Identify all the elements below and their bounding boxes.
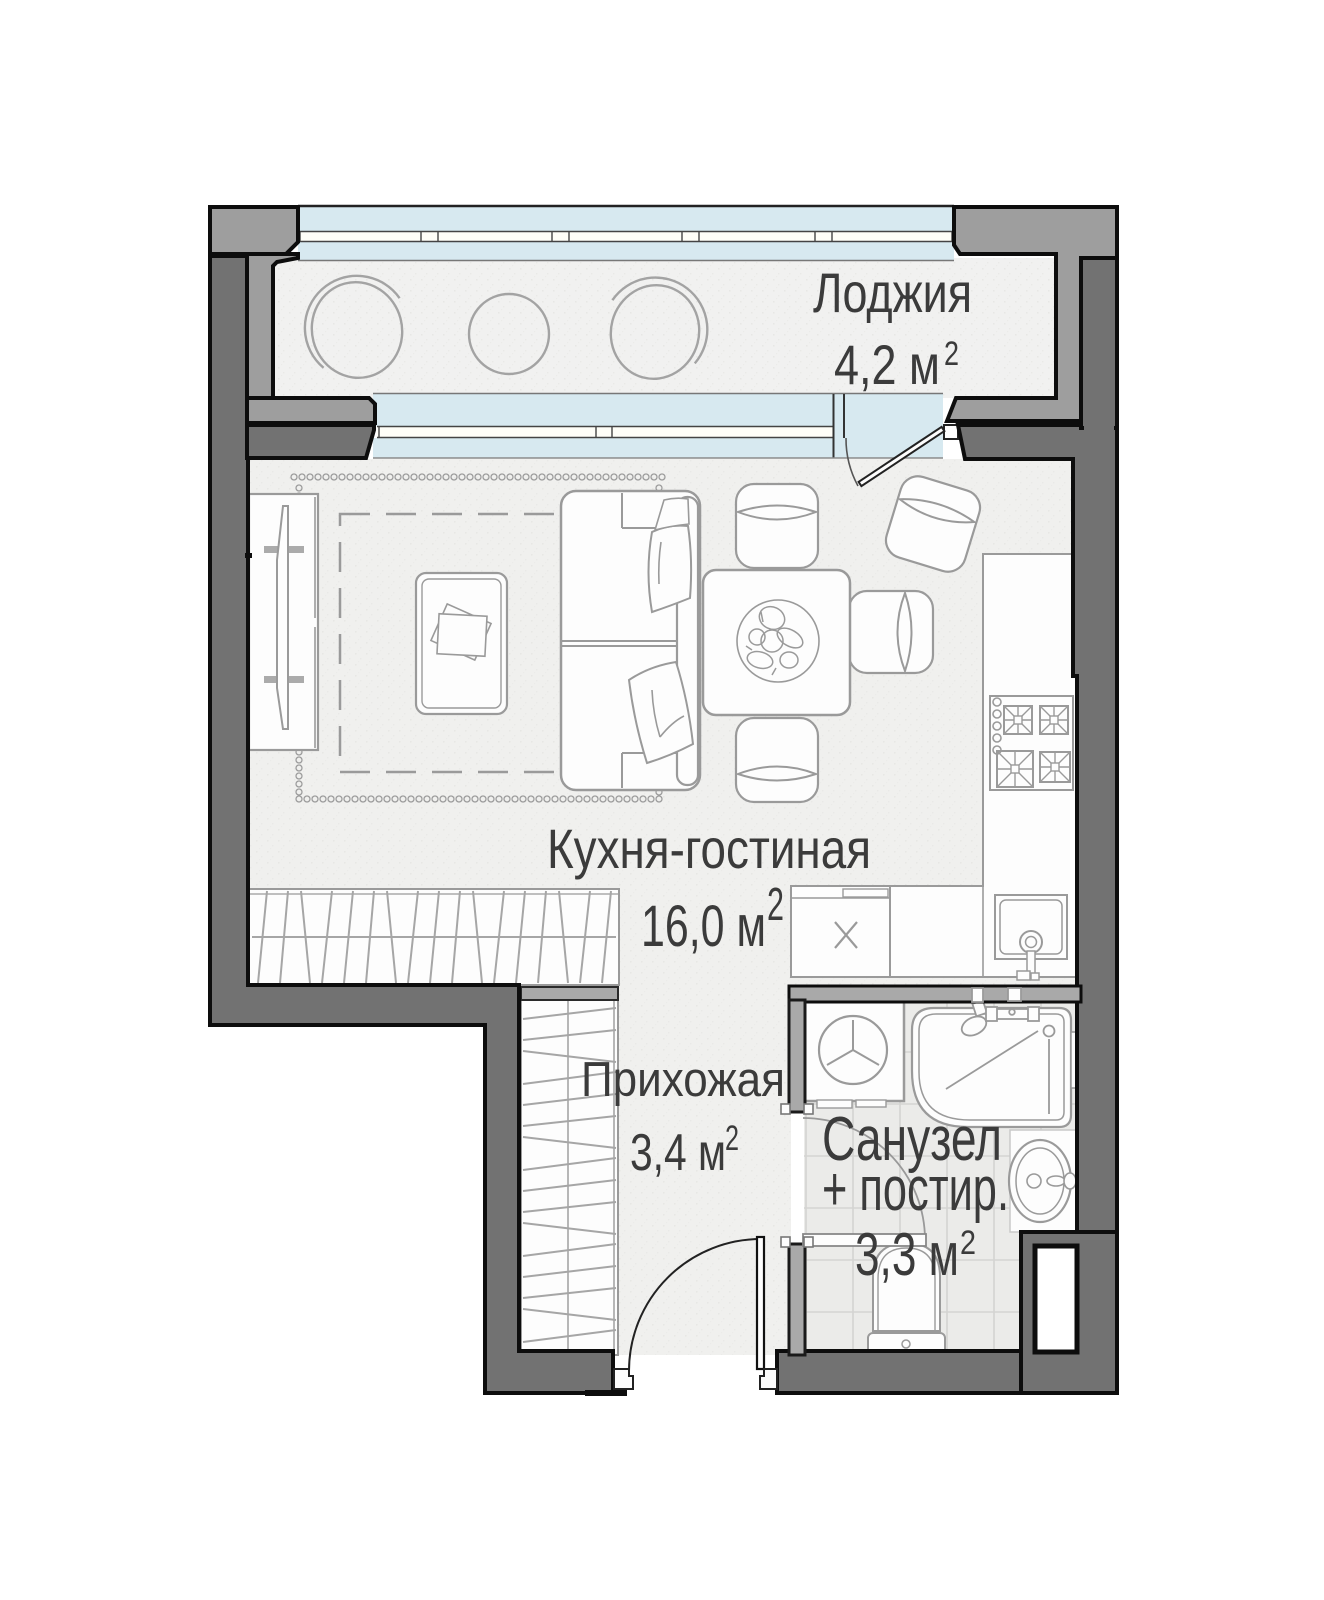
svg-text:2: 2 xyxy=(767,878,784,930)
svg-text:Лоджия: Лоджия xyxy=(813,261,972,324)
svg-text:2: 2 xyxy=(725,1119,739,1158)
svg-text:3,4 м: 3,4 м xyxy=(630,1124,726,1182)
svg-text:4,2 м: 4,2 м xyxy=(834,333,940,396)
svg-text:+ постир.: + постир. xyxy=(822,1155,1009,1224)
svg-text:Прихожая: Прихожая xyxy=(581,1053,785,1107)
svg-text:16,0 м: 16,0 м xyxy=(641,894,766,959)
svg-text:2: 2 xyxy=(944,335,959,373)
svg-text:3,3 м: 3,3 м xyxy=(855,1221,959,1288)
svg-text:Кухня-гостиная: Кухня-гостиная xyxy=(547,817,871,880)
svg-text:2: 2 xyxy=(960,1224,976,1262)
